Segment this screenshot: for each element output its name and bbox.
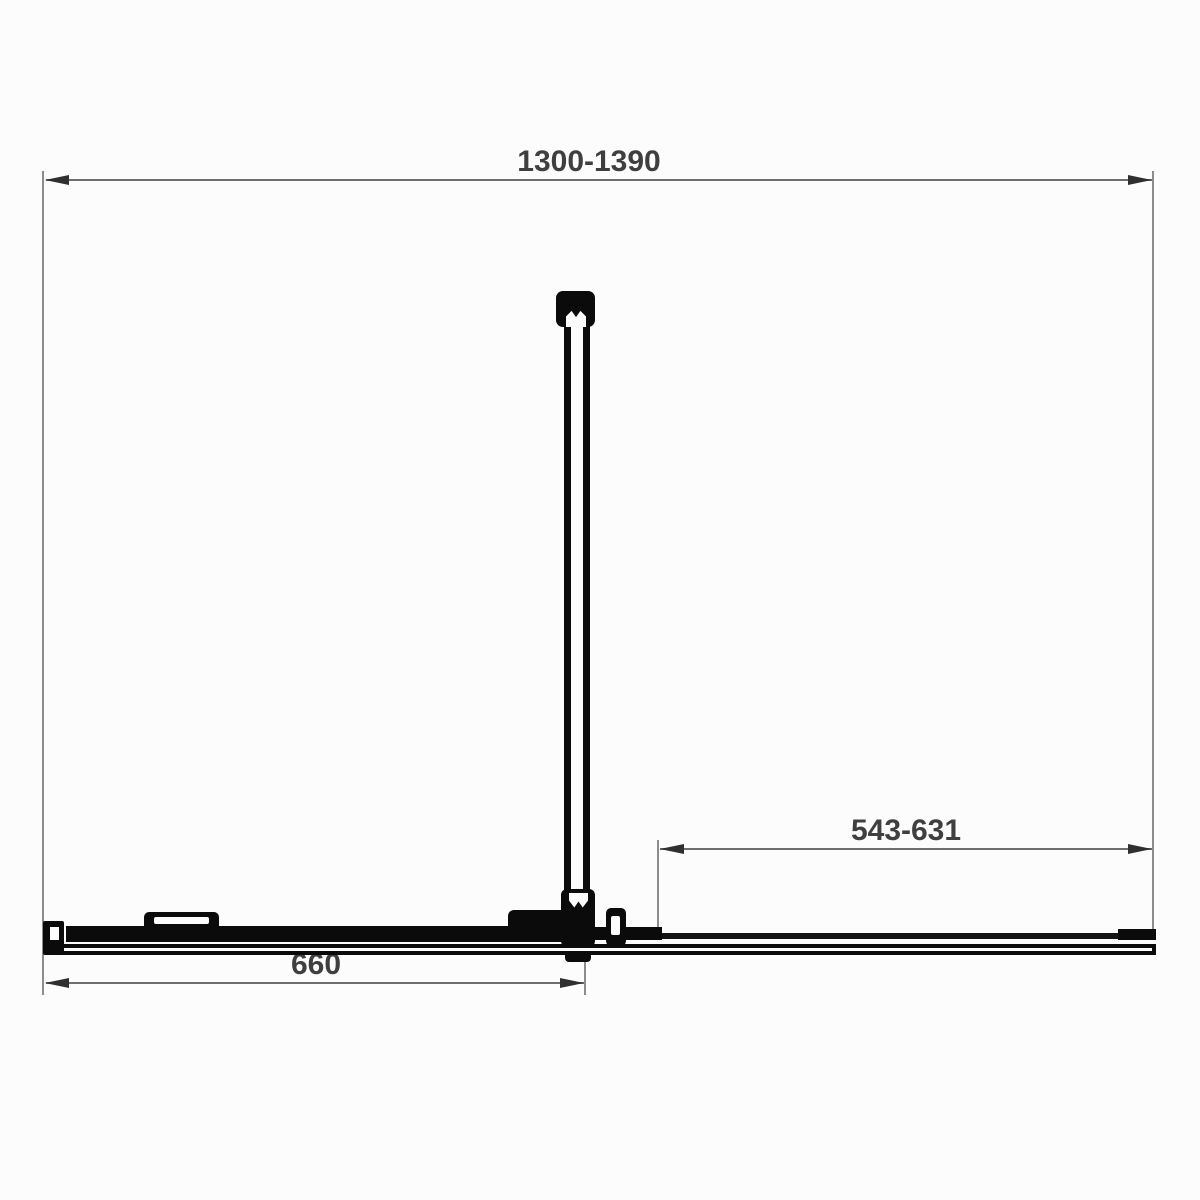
panel-connector-foot: [565, 951, 591, 962]
roller-clamp-hole: [611, 916, 620, 935]
wall-profile-channel-slot: [50, 927, 59, 940]
extension-line-right: [1152, 171, 1154, 931]
arrowhead-right-icon: [1128, 175, 1152, 185]
glass-panel-edge-right: [583, 324, 590, 892]
arrowhead-left-icon: [660, 844, 684, 854]
door-frame-extension: [594, 927, 662, 940]
fixed-panel-end-cap: [1118, 929, 1156, 940]
dimension-line-opening-width: [660, 848, 1152, 850]
extension-line-left: [42, 171, 44, 995]
dimension-line-door-width: [46, 982, 584, 984]
dimension-label-opening-width: 543-631: [851, 815, 961, 847]
arrowhead-left-icon: [45, 978, 69, 988]
arrowhead-right-icon: [560, 978, 584, 988]
fixed-panel-profile: [662, 933, 1156, 939]
glass-panel-edge-left: [564, 324, 571, 892]
dimension-line-overall-width: [46, 179, 1152, 181]
arrowhead-right-icon: [1128, 844, 1152, 854]
technical-drawing-canvas: 1300-1390 543-631 660: [0, 0, 1200, 1200]
door-handle-slot: [154, 917, 209, 924]
door-guide-bracket: [508, 910, 565, 927]
arrowhead-left-icon: [45, 175, 69, 185]
extension-line-opening-left: [657, 840, 659, 933]
dimension-label-overall-width: 1300-1390: [517, 146, 660, 178]
bottom-track-groove: [64, 948, 1152, 951]
